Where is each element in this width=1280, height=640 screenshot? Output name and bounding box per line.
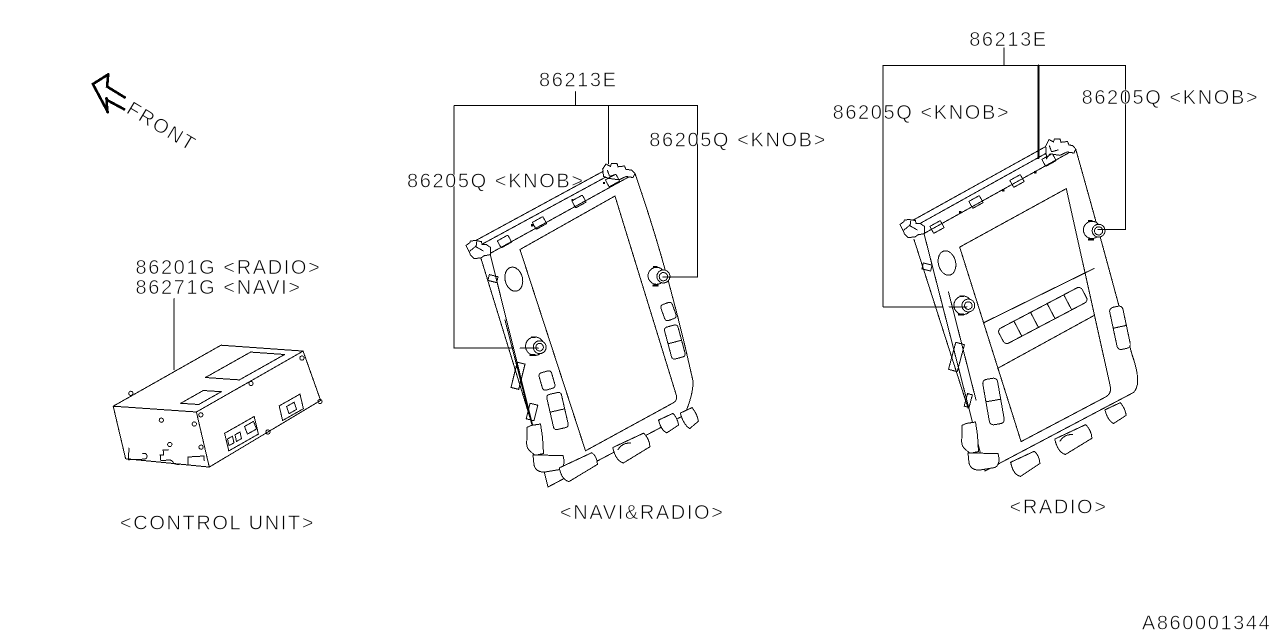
svg-text:<NAVI&RADIO>: <NAVI&RADIO>: [560, 502, 724, 524]
svg-text:86213E: 86213E: [539, 69, 618, 91]
svg-text:86205Q <KNOB>: 86205Q <KNOB>: [833, 102, 1011, 124]
svg-text:86201G <RADIO>: 86201G <RADIO>: [136, 257, 322, 279]
svg-text:86205Q <KNOB>: 86205Q <KNOB>: [407, 170, 585, 192]
svg-text:<RADIO>: <RADIO>: [1010, 497, 1108, 519]
svg-text:86205Q <KNOB>: 86205Q <KNOB>: [649, 129, 827, 151]
svg-text:<CONTROL UNIT>: <CONTROL UNIT>: [120, 513, 315, 535]
svg-text:A860001344: A860001344: [1142, 612, 1271, 634]
svg-text:86205Q <KNOB>: 86205Q <KNOB>: [1082, 87, 1260, 109]
svg-text:86213E: 86213E: [969, 29, 1048, 51]
svg-text:FRONT: FRONT: [123, 98, 200, 156]
svg-text:86271G <NAVI>: 86271G <NAVI>: [136, 277, 302, 299]
